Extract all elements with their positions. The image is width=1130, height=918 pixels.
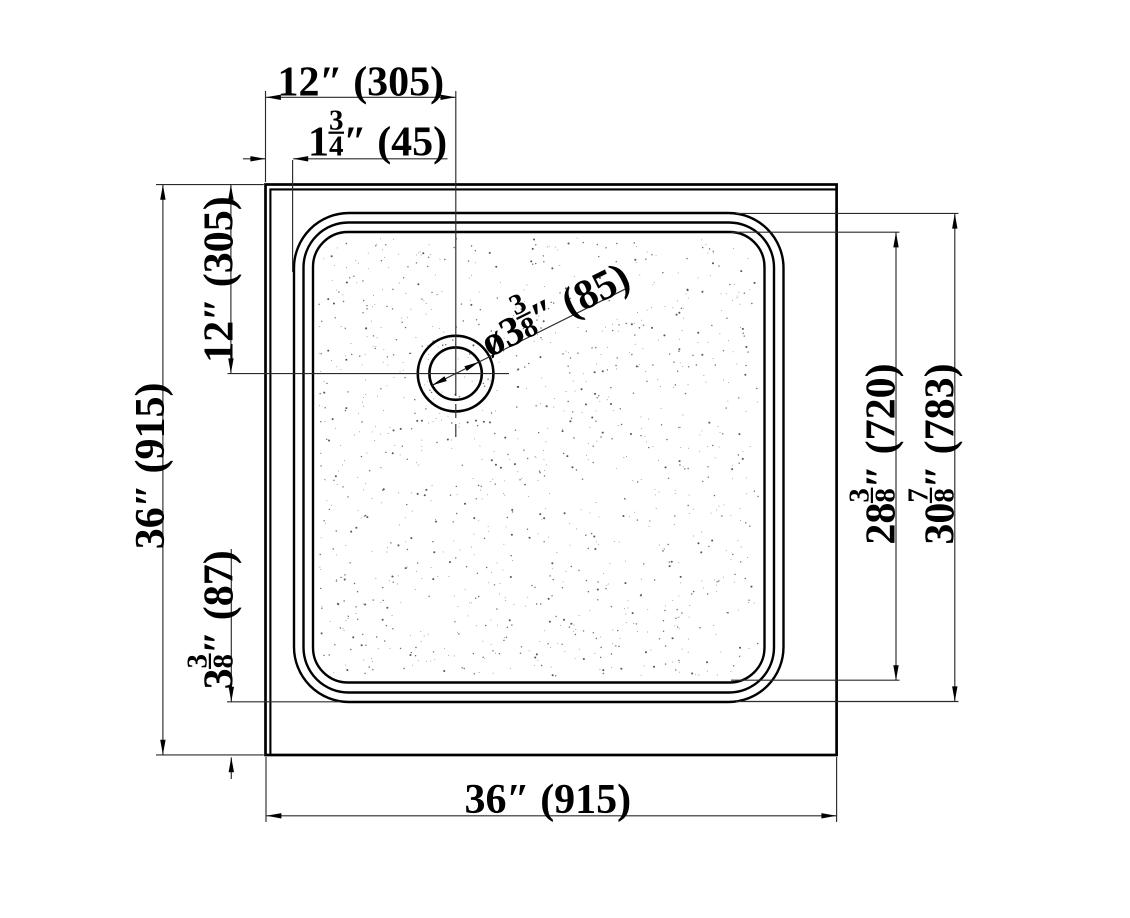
svg-text:12″ (305): 12″ (305) <box>197 196 243 363</box>
svg-text:12″ (305): 12″ (305) <box>278 59 445 105</box>
svg-text:8: 8 <box>208 654 240 669</box>
svg-text:″ (720): ″ (720) <box>859 363 905 488</box>
svg-text:3: 3 <box>197 668 243 689</box>
svg-text:36″ (915): 36″ (915) <box>465 777 632 823</box>
svg-text:8: 8 <box>870 488 902 503</box>
svg-text:″ (45): ″ (45) <box>344 119 448 165</box>
svg-text:8: 8 <box>929 488 961 503</box>
svg-text:″ (783): ″ (783) <box>918 363 964 488</box>
svg-text:″ (87): ″ (87) <box>197 550 243 654</box>
svg-text:36″ (915): 36″ (915) <box>128 383 174 550</box>
svg-text:30: 30 <box>918 503 964 545</box>
svg-text:4: 4 <box>329 130 344 162</box>
svg-text:28: 28 <box>859 503 905 545</box>
svg-text:1: 1 <box>308 119 329 165</box>
